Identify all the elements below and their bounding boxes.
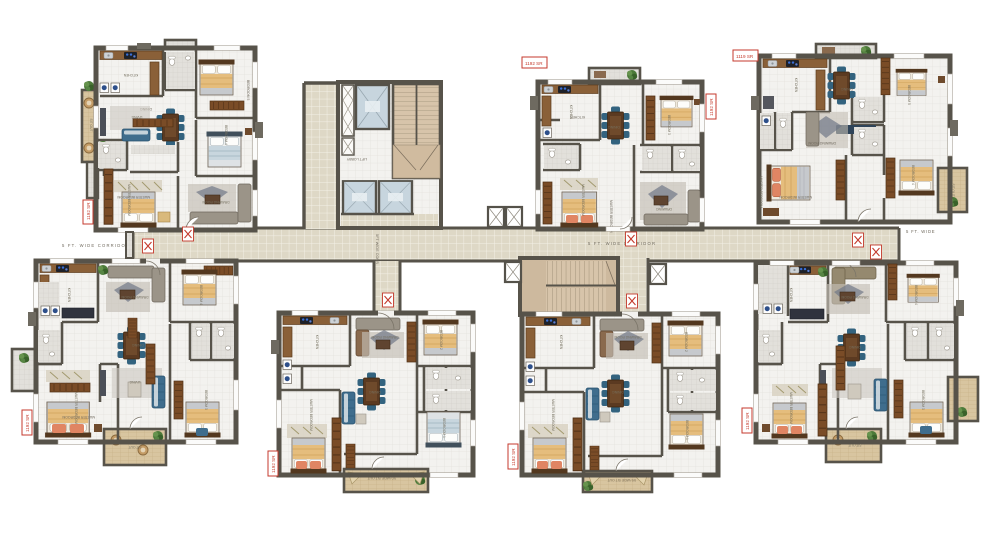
svg-text:MASTER BEDROOM: MASTER BEDROOM [759,176,763,208]
svg-text:DINING: DINING [608,125,620,129]
svg-text:DINING: DINING [612,390,624,394]
svg-text:DRAWING ROOM: DRAWING ROOM [808,141,836,145]
svg-text:1192 SR: 1192 SR [511,448,516,466]
svg-text:SIT OUT: SIT OUT [129,445,142,449]
svg-text:DINING: DINING [132,343,144,347]
svg-text:BEDROOM 3: BEDROOM 3 [204,390,208,410]
svg-text:BEDROOM 4: BEDROOM 4 [914,285,918,305]
svg-text:KITCHEN: KITCHEN [789,288,793,303]
svg-text:BEDROOM 2: BEDROOM 2 [684,332,688,352]
svg-text:MASTER BEDROOM: MASTER BEDROOM [789,392,793,424]
svg-text:DRAWING ROOM: DRAWING ROOM [371,335,398,339]
svg-text:LIFT LOBBY: LIFT LOBBY [346,157,367,161]
svg-text:DINING: DINING [849,345,861,349]
svg-text:LIVING: LIVING [131,115,142,119]
svg-text:MASTER BEDROOM: MASTER BEDROOM [117,195,150,199]
svg-text:DINING: DINING [369,390,381,394]
svg-text:BEDROOM 4: BEDROOM 4 [224,125,228,145]
svg-text:5FT WIDE CORR: 5FT WIDE CORR [375,234,379,264]
svg-text:DRAWING ROOM: DRAWING ROOM [121,295,148,299]
svg-text:DINING: DINING [841,87,853,91]
svg-text:MASTER BEDROOM: MASTER BEDROOM [581,184,585,216]
svg-text:DRAWING ROOM: DRAWING ROOM [202,200,229,204]
svg-text:DRAWING ROOM: DRAWING ROOM [841,295,868,299]
svg-text:5 FT. WIDE CORRIDOR: 5 FT. WIDE CORRIDOR [62,243,130,248]
svg-text:KITCHEN: KITCHEN [123,73,138,77]
svg-text:5 FT. WIDE: 5 FT. WIDE [906,229,935,234]
svg-text:BEDROOM 1: BEDROOM 1 [685,420,689,440]
svg-text:SIT OUT: SIT OUT [951,184,955,197]
svg-text:1192 SR: 1192 SR [25,414,30,432]
svg-text:SIT OUT: SIT OUT [849,443,862,447]
svg-text:MASTER BEDROOM: MASTER BEDROOM [779,195,812,199]
svg-text:SIT OUT: SIT OUT [89,119,93,132]
svg-text:BEDROOM 2: BEDROOM 2 [439,330,443,350]
svg-text:DRAWING ROOM: DRAWING ROOM [614,335,641,339]
svg-text:BEDROOM 5: BEDROOM 5 [246,80,250,100]
svg-text:BEDROOM 5: BEDROOM 5 [907,85,911,105]
svg-text:BEDROOM 4: BEDROOM 4 [199,285,203,305]
svg-text:1192 SR: 1192 SR [745,412,750,430]
svg-text:LIVING: LIVING [129,380,140,384]
svg-text:KITCHEN: KITCHEN [569,105,573,120]
svg-text:MASTER BEDROOM: MASTER BEDROOM [551,399,555,431]
svg-text:MASTER BEDROOM: MASTER BEDROOM [127,184,131,216]
svg-text:BEDROOM 4: BEDROOM 4 [911,165,915,185]
svg-text:1192 SR: 1192 SR [271,455,276,473]
svg-text:DRAWING: DRAWING [656,207,672,211]
svg-text:1192 SR: 1192 SR [525,61,543,66]
svg-text:KITCHEN: KITCHEN [559,335,563,350]
svg-text:BEDROOM 3: BEDROOM 3 [921,390,925,410]
svg-text:KITCHEN: KITCHEN [67,288,71,303]
svg-text:MASTER BEDROOM: MASTER BEDROOM [309,399,313,431]
svg-text:5'6 WIDE SIT OUT: 5'6 WIDE SIT OUT [608,478,636,482]
svg-text:1192 SR: 1192 SR [86,202,91,220]
svg-text:BEDROOM 3: BEDROOM 3 [667,115,671,135]
svg-text:BEDROOM 1: BEDROOM 1 [442,418,446,438]
svg-text:KITCHEN: KITCHEN [315,335,319,350]
svg-text:1119 SR: 1119 SR [736,54,754,59]
svg-text:1192 SR: 1192 SR [709,98,714,116]
svg-text:KITCHEN: KITCHEN [794,78,798,93]
svg-text:5 FT. WIDE CORRIDOR: 5 FT. WIDE CORRIDOR [588,241,656,246]
svg-text:MASTER BEDROOM: MASTER BEDROOM [74,392,78,424]
